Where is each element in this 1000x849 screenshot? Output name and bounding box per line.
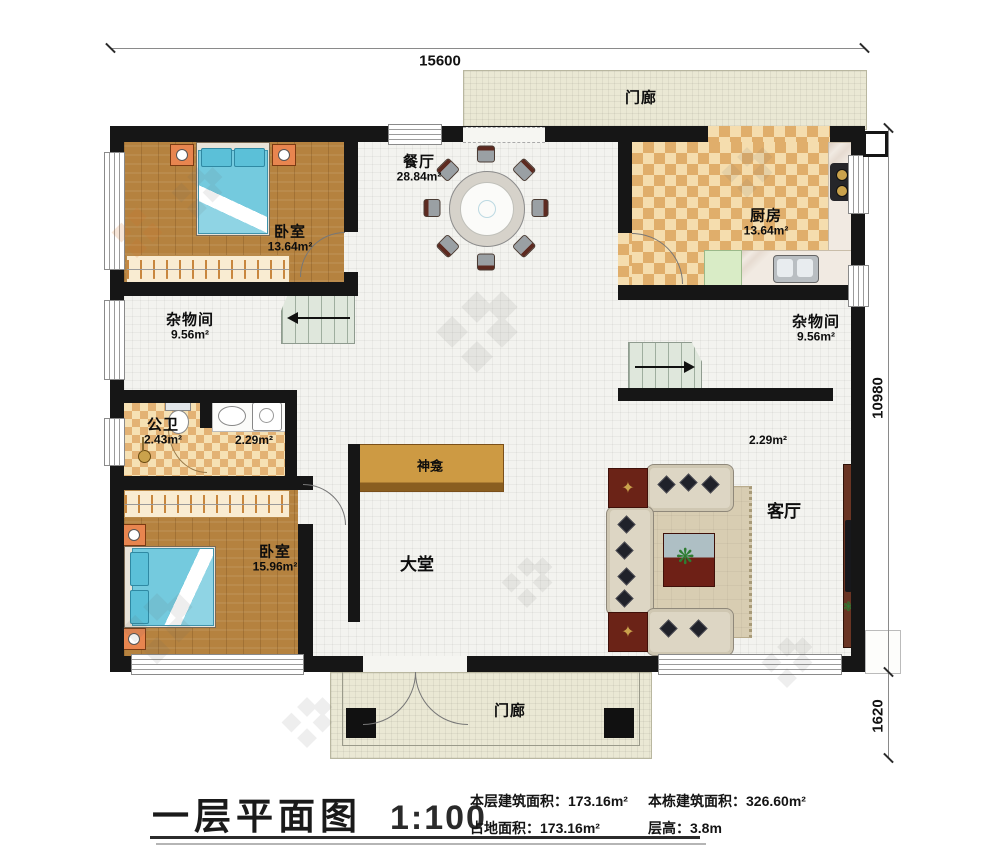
dimension-top-width: 15600 xyxy=(419,53,461,70)
bath-sink xyxy=(218,406,246,426)
kitchen-cutting-board xyxy=(704,250,742,286)
nightstand-top-right xyxy=(272,144,296,166)
room-name: 公卫 xyxy=(144,416,182,433)
dimension-right-height: 10980 xyxy=(870,377,887,419)
room-area: 13.64m² xyxy=(268,241,313,255)
room-area: 15.96m² xyxy=(253,561,298,575)
room-area: 9.56m² xyxy=(166,329,214,343)
end-table-bottom: ✦ xyxy=(608,612,648,652)
stairs-left-arrowhead xyxy=(287,312,298,324)
stairs-right-arrowhead xyxy=(684,361,695,373)
window-right-storage xyxy=(848,265,869,307)
stairs-left-arrow xyxy=(295,317,350,319)
room-name: 神龛 xyxy=(417,459,443,474)
wall-bath-right xyxy=(285,390,297,478)
shower-head xyxy=(138,450,151,463)
sofa-bottom xyxy=(646,608,734,656)
porch-column-right xyxy=(604,708,634,738)
stat-label: 占地面积： xyxy=(470,820,540,836)
watermark xyxy=(297,697,317,717)
room-label-storage-left: 杂物间 9.56m² xyxy=(166,311,214,342)
stat-value: 3.8m xyxy=(690,820,722,836)
stat-land-area: 占地面积：173.16m² xyxy=(470,818,600,838)
dimension-line-right-lower xyxy=(888,672,889,758)
room-name: 卧室 xyxy=(253,543,298,560)
stat-floor-area: 本层建筑面积：173.16m² xyxy=(470,791,628,811)
room-name: 餐厅 xyxy=(397,153,442,170)
window-right-kitchen xyxy=(848,155,869,214)
room-label-dining: 餐厅 28.84m² xyxy=(397,153,442,184)
room-area: 28.84m² xyxy=(397,171,442,185)
kitchen-sink-basin-left xyxy=(777,259,793,277)
floor-plan-canvas: ✦ ✦ ❋ ❃ 门廊 餐厅 28.84m² 厨房 13.64m² 卧室 13.6… xyxy=(0,0,1000,849)
dimension-line-top xyxy=(110,48,865,49)
room-name: 杂物间 xyxy=(166,311,214,328)
dining-chair xyxy=(477,254,495,271)
nightstand-bottom-upper xyxy=(122,524,146,546)
kitchen-sink-basin-right xyxy=(797,259,813,277)
bed-top-pillow-left xyxy=(201,148,232,167)
wall-kitchen-bottom xyxy=(618,285,865,300)
wall-bedroom-bottom-right xyxy=(298,524,313,658)
window-left-bathroom xyxy=(104,418,125,466)
window-bottom-living xyxy=(658,654,842,675)
stat-label: 层高： xyxy=(648,820,690,836)
dining-chair xyxy=(532,199,549,217)
title-underline-thin xyxy=(156,843,706,845)
room-label-shrine: 神龛 xyxy=(417,460,443,475)
flue-box xyxy=(863,131,888,157)
room-label-porch-top: 门廊 xyxy=(625,89,657,106)
room-name: 厨房 xyxy=(744,207,789,224)
room-label-hall: 大堂 xyxy=(400,555,434,575)
window-left-bedroom-top xyxy=(104,152,125,270)
wall-hall-shrine xyxy=(348,444,360,622)
door-opening-main-entry xyxy=(363,656,467,672)
room-label-bathroom: 公卫 2.43m² xyxy=(144,416,182,447)
stove-burner-top xyxy=(836,169,848,181)
washing-machine-drum xyxy=(259,408,274,423)
stat-value: 173.16m² xyxy=(568,793,628,809)
nightstand-bottom-lower xyxy=(122,628,146,650)
opening-kitchen-top xyxy=(708,126,830,142)
wardrobe-top xyxy=(126,255,290,284)
room-area: 13.64m² xyxy=(744,225,789,239)
stove-burner-bottom xyxy=(836,185,848,197)
wall-kitchen-left xyxy=(618,142,632,233)
room-name: 门廊 xyxy=(494,702,526,719)
stat-floor-height: 层高：3.8m xyxy=(648,818,722,838)
nightstand-top-left xyxy=(170,144,194,166)
wardrobe-bottom xyxy=(124,490,290,518)
porch-top-threshold xyxy=(463,127,545,143)
room-label-laundry-area: 2.29m² xyxy=(235,434,273,448)
room-area: 2.29m² xyxy=(749,434,787,448)
dining-chair xyxy=(477,146,495,163)
room-area: 9.56m² xyxy=(792,331,840,345)
dining-chair xyxy=(424,199,441,217)
stat-total-area: 本栋建筑面积：326.60m² xyxy=(648,791,806,811)
room-label-living: 客厅 xyxy=(767,502,801,522)
stat-label: 本层建筑面积： xyxy=(470,793,568,809)
wall-bedroom-top-bottom xyxy=(124,282,358,296)
wall-storage-right-bottom xyxy=(618,388,833,401)
dimension-right-porch: 1620 xyxy=(870,699,887,732)
room-label-bedroom-bottom: 卧室 15.96m² xyxy=(253,543,298,574)
dimension-line-right-upper xyxy=(888,128,889,672)
room-label-storage-right: 杂物间 9.56m² xyxy=(792,313,840,344)
kitchen-door-floor xyxy=(618,233,632,285)
wall-bath-bottom xyxy=(124,476,313,490)
window-bottom-bedroom xyxy=(131,654,304,675)
coffee-table-plant: ❋ xyxy=(676,546,694,568)
title-block: 一层平面图 1:100 xyxy=(152,786,487,840)
room-name: 杂物间 xyxy=(792,313,840,330)
wall-bedroom-top-right-upper xyxy=(344,142,358,232)
room-label-bedroom-top: 卧室 13.64m² xyxy=(268,223,313,254)
room-label-hall-nook-area: 2.29m² xyxy=(749,434,787,448)
stat-label: 本栋建筑面积： xyxy=(648,793,746,809)
bed-top-pillow-right xyxy=(234,148,265,167)
room-name: 门廊 xyxy=(625,89,657,106)
bed-bottom-pillow-lower xyxy=(130,590,149,624)
dining-table-center xyxy=(478,200,496,218)
room-name: 大堂 xyxy=(400,555,434,574)
window-left-storage xyxy=(104,300,125,380)
stat-value: 326.60m² xyxy=(746,793,806,809)
room-label-porch-bottom: 门廊 xyxy=(494,702,526,719)
room-label-kitchen: 厨房 13.64m² xyxy=(744,207,789,238)
title-underline-thick xyxy=(150,836,700,839)
room-area: 2.43m² xyxy=(144,434,182,448)
room-name: 卧室 xyxy=(268,223,313,240)
stat-value: 173.16m² xyxy=(540,820,600,836)
window-top-dining xyxy=(388,124,442,145)
wall-bath-divider xyxy=(200,390,212,428)
stairs-right-arrow xyxy=(635,366,687,368)
room-name: 客厅 xyxy=(767,502,801,521)
porch-top xyxy=(463,70,867,130)
end-table-top: ✦ xyxy=(608,468,648,508)
bed-bottom-pillow-upper xyxy=(130,552,149,586)
room-area: 2.29m² xyxy=(235,434,273,448)
page-title: 一层平面图 xyxy=(152,786,362,840)
